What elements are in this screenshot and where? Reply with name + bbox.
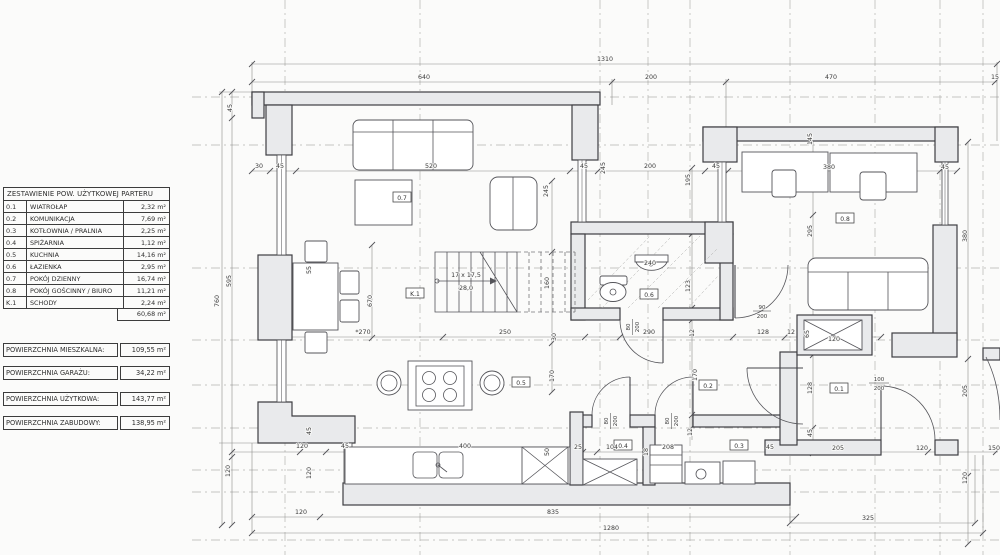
coffee-table <box>355 180 412 225</box>
kitchen-island <box>408 361 472 410</box>
stair-note: 28,0 <box>459 285 473 292</box>
dim-label: 150 <box>988 445 1000 452</box>
door-pantry <box>592 377 630 415</box>
dim-label: 30 <box>255 163 263 170</box>
sofa-living <box>353 120 473 170</box>
room-label: 0.7 <box>393 192 411 202</box>
svg-text:80: 80 <box>604 417 610 424</box>
door-size-label: 90200 <box>753 305 771 320</box>
dim-label: 120 <box>916 445 928 452</box>
svg-text:0.4: 0.4 <box>618 443 628 450</box>
svg-text:0.2: 0.2 <box>703 383 713 390</box>
dim-label: 12 <box>687 428 694 436</box>
dim-label: 760 <box>214 295 221 307</box>
dim-label: 45 <box>807 429 814 437</box>
svg-text:0.5: 0.5 <box>516 380 526 387</box>
dim-label: 65 <box>804 330 811 338</box>
door-entrance <box>881 386 935 440</box>
desk-chair <box>860 172 886 200</box>
sofa-office <box>808 258 928 310</box>
dim-label: *270 <box>355 329 370 336</box>
dim-label: 145 <box>807 133 814 145</box>
dining-table <box>293 263 338 330</box>
svg-text:K.1: K.1 <box>410 291 420 298</box>
dim-label: 45 <box>766 444 774 451</box>
dim-label: 160 <box>544 277 551 289</box>
dim-label: 30 <box>551 333 558 341</box>
room-label: 0.1 <box>830 383 848 393</box>
svg-text:90: 90 <box>759 305 766 311</box>
door-garage-partial <box>986 357 1000 420</box>
svg-text:0.8: 0.8 <box>840 216 850 223</box>
dim-label: 245 <box>600 162 607 174</box>
dim-label: 380 <box>962 230 969 242</box>
dim-label: 120 <box>225 465 232 477</box>
floor-plan: 0.7 K.1 0.6 0.5 0.8 0.2 0.4 0.3 0.1 1310… <box>0 0 1000 555</box>
dim-label: 290 <box>643 329 655 336</box>
chair <box>340 271 359 294</box>
furniture <box>293 120 928 485</box>
dim-label: 380 <box>823 164 835 171</box>
dim-label: 200 <box>645 74 657 81</box>
room-label: 0.2 <box>699 380 717 390</box>
dim-label: 205 <box>832 445 844 452</box>
dim-label: 12 <box>787 329 795 336</box>
dim-label: 295 <box>807 225 814 237</box>
door-size-label: 80200 <box>665 413 680 429</box>
dim-label: 128 <box>807 382 814 394</box>
door-size-label: 80200 <box>604 413 619 429</box>
chair <box>305 241 327 262</box>
room-label: 0.5 <box>512 377 530 387</box>
svg-text:0.1: 0.1 <box>834 386 844 393</box>
dim-label: 120 <box>828 336 840 343</box>
svg-text:200: 200 <box>613 415 619 426</box>
dim-label: 123 <box>685 280 692 292</box>
dim-label: 1310 <box>597 56 613 63</box>
stair-note: 17 x 17,5 <box>451 272 481 279</box>
door-size-label: 100200 <box>869 377 889 392</box>
washing-machine <box>685 462 720 484</box>
dim-label: 128 <box>757 329 769 336</box>
dim-label: 240 <box>644 260 656 267</box>
dim-label: 45 <box>276 163 284 170</box>
dim-label: 120 <box>295 509 307 516</box>
dim-label: 12 <box>689 329 696 337</box>
dim-label: 170 <box>549 370 556 382</box>
dim-label: 1280 <box>603 525 619 532</box>
dim-label: 835 <box>547 509 559 516</box>
dim-label: 45 <box>341 443 349 450</box>
dim-label: 205 <box>962 385 969 397</box>
svg-text:200: 200 <box>757 314 768 320</box>
chair <box>340 300 359 322</box>
dim-label: 325 <box>862 515 874 522</box>
dim-label: 45 <box>941 164 949 171</box>
dim-label: 25 <box>574 444 582 451</box>
svg-text:80: 80 <box>665 417 671 424</box>
svg-text:0.3: 0.3 <box>734 443 744 450</box>
dim-label: 245 <box>543 185 550 197</box>
room-label: 0.3 <box>730 440 748 450</box>
svg-text:100: 100 <box>874 377 885 383</box>
dim-label: 470 <box>825 74 837 81</box>
boiler <box>723 461 755 484</box>
dim-label: 45 <box>580 163 588 170</box>
chair <box>305 332 327 353</box>
door-boiler-room <box>655 377 693 415</box>
armchair <box>490 177 537 230</box>
dim-label: 50 <box>544 448 551 456</box>
svg-text:200: 200 <box>635 321 641 332</box>
staircase <box>435 252 575 312</box>
dim-label: 208 <box>662 444 674 451</box>
dim-label: 170 <box>692 369 699 381</box>
room-label: 0.8 <box>836 213 854 223</box>
svg-text:0.7: 0.7 <box>397 195 407 202</box>
dim-label: 400 <box>459 443 471 450</box>
dim-label: 250 <box>499 329 511 336</box>
dim-label: 18 <box>643 448 650 456</box>
dim-label: 200 <box>644 163 656 170</box>
room-label: K.1 <box>406 288 424 298</box>
dim-label: 120 <box>296 443 308 450</box>
dim-label: 45 <box>306 427 313 435</box>
toilet <box>600 283 626 302</box>
svg-text:200: 200 <box>674 415 680 426</box>
dim-label: 520 <box>425 163 437 170</box>
dim-label: 15 <box>991 74 999 81</box>
dim-label: 45 <box>712 163 720 170</box>
dim-label: 104 <box>606 444 618 451</box>
svg-text:80: 80 <box>626 323 632 330</box>
dim-label: 640 <box>418 74 430 81</box>
dim-label: 55 <box>306 266 313 274</box>
dim-label: 120 <box>306 467 313 479</box>
svg-text:0.6: 0.6 <box>644 292 654 299</box>
svg-text:200: 200 <box>874 386 885 392</box>
dim-label: 120 <box>962 472 969 484</box>
dim-label: 595 <box>226 275 233 287</box>
door-size-label: 80200 <box>626 319 641 335</box>
room-label: 0.6 <box>640 289 658 299</box>
desk-chair <box>772 170 796 197</box>
dim-label: 670 <box>367 295 374 307</box>
dim-label: 195 <box>685 174 692 186</box>
dim-label: 45 <box>227 104 234 112</box>
